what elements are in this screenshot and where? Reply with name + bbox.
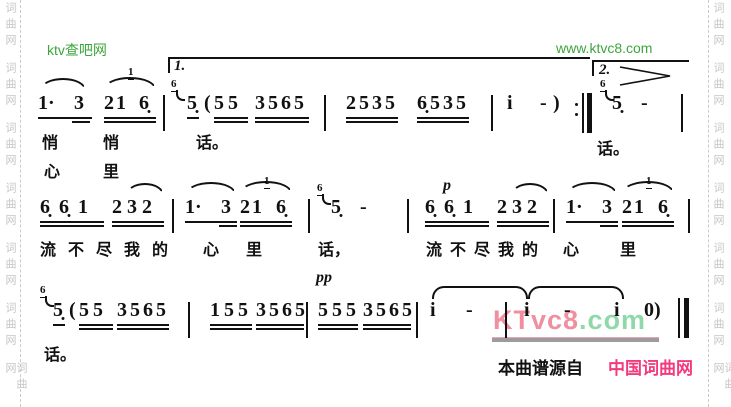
side-border-text: 词曲网 bbox=[4, 122, 15, 170]
side-border-text: 词曲网 bbox=[712, 242, 723, 290]
note-token: 155 bbox=[210, 300, 252, 320]
beam bbox=[425, 221, 489, 223]
final-thin-bar bbox=[678, 298, 680, 338]
side-border-text: 词曲网 bbox=[4, 2, 15, 50]
note-token: 1· bbox=[38, 93, 55, 113]
tie bbox=[528, 286, 624, 299]
lyric: 不 bbox=[68, 243, 84, 259]
beam bbox=[210, 324, 252, 326]
lyric: 我 bbox=[124, 243, 140, 259]
side-border-text: 词曲网 bbox=[4, 62, 15, 110]
note-token: - bbox=[564, 300, 571, 320]
note-token: 21 bbox=[622, 197, 646, 217]
note-token: - bbox=[360, 197, 367, 217]
beam bbox=[240, 225, 292, 227]
lyric: 的 bbox=[152, 243, 168, 259]
beam bbox=[566, 221, 618, 223]
note-token: 3 bbox=[221, 197, 231, 217]
left-border-dash bbox=[20, 0, 21, 407]
beam bbox=[72, 121, 90, 123]
note-token: 6̣6̣1 bbox=[425, 197, 482, 217]
sheet-music-page: 词曲网 词曲网 词曲网 词曲网 词曲网 词曲网 词曲网 词曲网 词曲网 词曲网 … bbox=[0, 0, 731, 407]
note-token: 1· bbox=[566, 197, 583, 217]
watermark-underline bbox=[492, 337, 659, 342]
barline bbox=[491, 95, 493, 131]
note-token: i bbox=[524, 300, 530, 320]
beam bbox=[622, 221, 674, 223]
beam bbox=[40, 221, 104, 223]
beam bbox=[117, 324, 169, 326]
beam bbox=[417, 121, 469, 123]
note-token: 0) bbox=[644, 300, 661, 320]
note-token: 5̣ bbox=[612, 93, 622, 113]
decrescendo-hairpin-icon bbox=[618, 63, 676, 89]
note-token: i bbox=[614, 300, 620, 320]
note-token: 2535 bbox=[346, 93, 398, 113]
barline bbox=[681, 94, 683, 132]
barline bbox=[308, 199, 310, 233]
watermark-ktvc8-green: .com bbox=[579, 305, 646, 335]
slur bbox=[40, 78, 86, 90]
beam bbox=[256, 324, 304, 326]
beam bbox=[497, 225, 549, 227]
volta-1-label: 1. bbox=[174, 59, 185, 74]
beam bbox=[256, 328, 304, 330]
lyric: 话。 bbox=[597, 142, 629, 158]
lyric: 流 bbox=[40, 243, 56, 259]
repeat-dot bbox=[575, 113, 578, 116]
lyric: 话。 bbox=[196, 136, 228, 152]
beam bbox=[255, 117, 309, 119]
beam bbox=[117, 328, 169, 330]
watermark-ktvc8-url: www.ktvc8.com bbox=[556, 40, 652, 56]
note-token: 3565 bbox=[256, 300, 308, 320]
side-border-text: 词曲网 bbox=[4, 302, 15, 350]
repeat-dot bbox=[575, 103, 578, 106]
repeat-thick-bar bbox=[587, 93, 592, 133]
volta-2-label: 2. bbox=[599, 63, 610, 78]
note-token: i bbox=[507, 93, 513, 113]
lyric: 话， bbox=[318, 243, 350, 259]
note-token: 5̣ bbox=[187, 93, 197, 113]
note-token: 3 bbox=[602, 197, 612, 217]
slur bbox=[104, 77, 156, 89]
beam bbox=[38, 117, 92, 119]
lyric: 悄 bbox=[42, 136, 58, 152]
note-token: 6̣ bbox=[658, 197, 668, 217]
note-token: 6̣6̣1 bbox=[40, 197, 97, 217]
beam bbox=[210, 328, 252, 330]
note-token: 21 bbox=[104, 93, 128, 113]
note-token: 555 bbox=[318, 300, 360, 320]
side-border-text: 词曲网 bbox=[712, 2, 723, 50]
final-thick-bar bbox=[684, 298, 689, 338]
note-token: 6̣535 bbox=[417, 93, 469, 113]
beam bbox=[112, 225, 164, 227]
grace-hook bbox=[176, 90, 185, 101]
barline bbox=[553, 199, 555, 233]
barline bbox=[324, 95, 326, 131]
beam bbox=[104, 117, 156, 119]
note-token: i bbox=[430, 300, 436, 320]
beam bbox=[104, 121, 156, 123]
side-border-text: 词曲网 bbox=[712, 362, 731, 407]
grace-hook bbox=[322, 194, 331, 205]
credit-brand: 中国词曲网 bbox=[608, 354, 693, 379]
side-border-text: 词曲网 bbox=[712, 182, 723, 230]
beam bbox=[318, 324, 358, 326]
note-token: 55 bbox=[214, 93, 242, 113]
note-token: - bbox=[641, 93, 648, 113]
repeat-thin-bar bbox=[582, 93, 584, 133]
note-token: 3565 bbox=[363, 300, 415, 320]
note-token: 55 bbox=[79, 300, 107, 320]
note-token: 232 bbox=[497, 197, 542, 217]
slur bbox=[186, 182, 236, 194]
lyric: 悄 bbox=[103, 136, 119, 152]
side-border-text: 词曲网 bbox=[4, 362, 26, 407]
lyric: 话。 bbox=[44, 348, 76, 364]
parenthesis-open: ( bbox=[69, 300, 76, 320]
lyric: 心 bbox=[203, 243, 219, 259]
side-border-text: 词曲网 bbox=[712, 62, 723, 110]
beam bbox=[240, 221, 292, 223]
lyric: 不 bbox=[450, 243, 466, 259]
lyric: 我 bbox=[498, 243, 514, 259]
slur bbox=[567, 182, 617, 194]
note-token: 6̣ bbox=[276, 197, 286, 217]
barline bbox=[188, 302, 190, 338]
beam bbox=[363, 324, 411, 326]
barline bbox=[163, 95, 165, 131]
slur bbox=[126, 183, 164, 195]
note-token: 5̣ bbox=[331, 197, 341, 217]
note-token: 5̣ bbox=[53, 300, 63, 320]
parenthesis-close: ) bbox=[553, 93, 560, 113]
beam bbox=[219, 225, 237, 227]
slur bbox=[240, 181, 292, 193]
lyric: 尽 bbox=[474, 243, 490, 259]
lyric: 流 bbox=[426, 243, 442, 259]
note-token: - bbox=[466, 300, 473, 320]
credit-prefix: 本曲谱源自 bbox=[498, 354, 583, 379]
barline bbox=[407, 199, 409, 233]
beam bbox=[600, 225, 618, 227]
barline bbox=[505, 302, 507, 338]
side-border-text: 词曲网 bbox=[4, 242, 15, 290]
slur bbox=[511, 183, 549, 195]
beam bbox=[346, 121, 398, 123]
beam bbox=[187, 117, 199, 119]
beam bbox=[112, 221, 164, 223]
note-token: 3565 bbox=[255, 93, 307, 113]
beam bbox=[497, 221, 549, 223]
lyric: 心 bbox=[563, 243, 579, 259]
side-border-text: 词曲网 bbox=[4, 182, 15, 230]
parenthesis-open: ( bbox=[204, 93, 211, 113]
barline bbox=[172, 199, 174, 233]
note-token: 232 bbox=[112, 197, 157, 217]
barline bbox=[688, 199, 690, 233]
barline bbox=[416, 302, 418, 338]
beam bbox=[214, 121, 248, 123]
beam bbox=[214, 117, 248, 119]
note-token: 6̣ bbox=[139, 93, 149, 113]
lyric: 里 bbox=[103, 165, 119, 181]
note-token: 21 bbox=[240, 197, 264, 217]
beam bbox=[40, 225, 104, 227]
note-token: - bbox=[540, 93, 547, 113]
slur bbox=[622, 181, 674, 193]
watermark-ktv-chaba: ktv查吧网 bbox=[47, 40, 107, 60]
lyric: 的 bbox=[522, 243, 538, 259]
side-border-text: 词曲网 bbox=[712, 302, 723, 350]
beam bbox=[363, 328, 411, 330]
lyric: 尽 bbox=[96, 243, 112, 259]
dynamic-pp: pp bbox=[316, 270, 332, 286]
lyric: 里 bbox=[246, 243, 262, 259]
dynamic-p: p bbox=[443, 178, 451, 194]
beam bbox=[318, 328, 358, 330]
beam bbox=[417, 117, 469, 119]
beam bbox=[185, 221, 237, 223]
beam bbox=[346, 117, 398, 119]
lyric: 心 bbox=[44, 165, 60, 181]
note-token: 3565 bbox=[117, 300, 169, 320]
right-border-dash bbox=[708, 0, 709, 407]
side-border-text: 词曲网 bbox=[712, 122, 723, 170]
beam bbox=[622, 225, 674, 227]
tie bbox=[432, 286, 528, 299]
lyric: 里 bbox=[620, 243, 636, 259]
beam bbox=[425, 225, 489, 227]
barline bbox=[306, 302, 308, 338]
beam bbox=[53, 324, 65, 326]
note-token: 3 bbox=[74, 93, 84, 113]
beam bbox=[79, 328, 113, 330]
note-token: 1· bbox=[185, 197, 202, 217]
beam bbox=[255, 121, 309, 123]
beam bbox=[79, 324, 113, 326]
volta-1-bracket bbox=[168, 57, 590, 73]
